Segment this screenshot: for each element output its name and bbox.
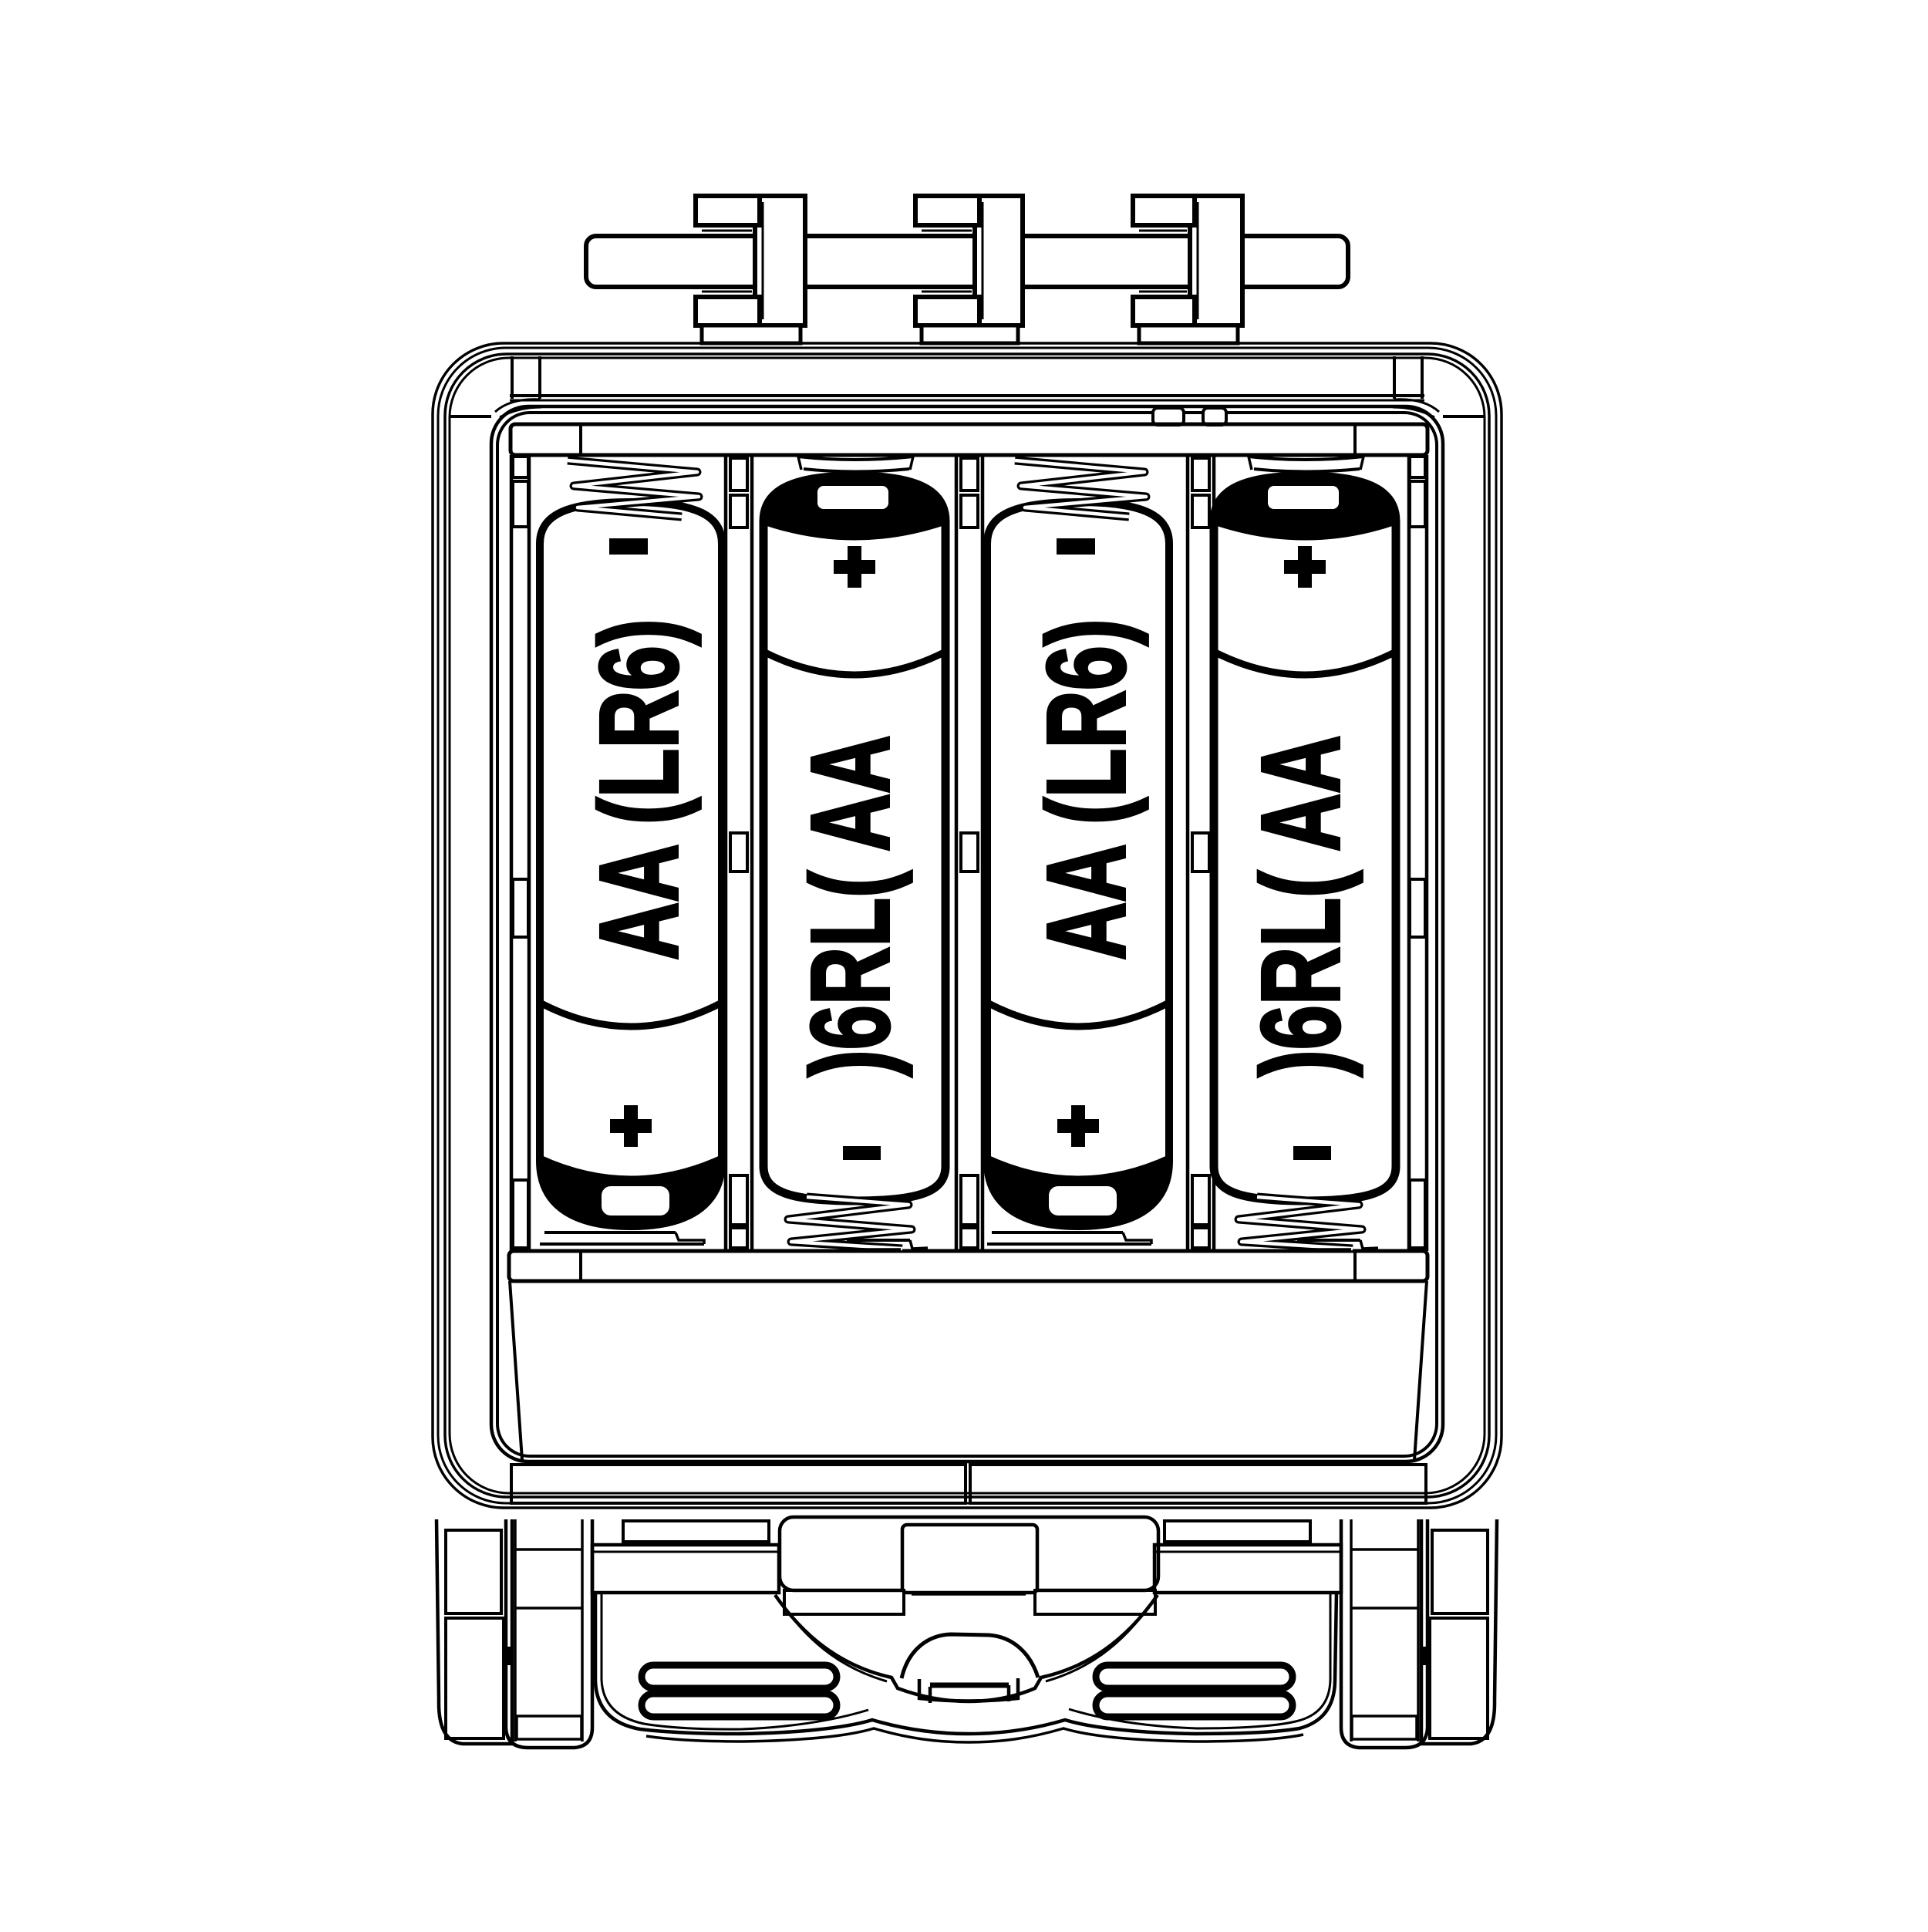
svg-text:)6RL( AA: )6RL( AA xyxy=(1238,735,1362,1077)
svg-text:AA (LR6): AA (LR6) xyxy=(1023,619,1148,960)
svg-text:AA (LR6): AA (LR6) xyxy=(576,619,700,960)
svg-text:)6RL( AA: )6RL( AA xyxy=(787,735,912,1077)
